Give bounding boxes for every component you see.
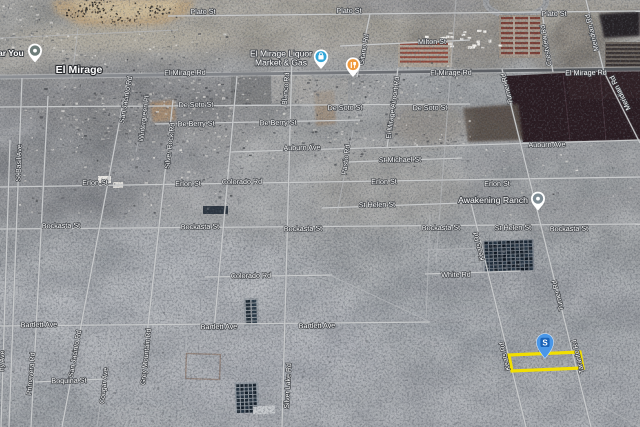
svg-text:De Soto St: De Soto St	[412, 103, 447, 113]
svg-text:Bockasta St: Bockasta St	[181, 222, 220, 232]
svg-text:El Mirage Rd: El Mirage Rd	[164, 68, 206, 78]
svg-text:Auburn Ave: Auburn Ave	[528, 140, 565, 150]
svg-text:Bartlett Ave: Bartlett Ave	[21, 320, 58, 330]
svg-text:St Helen St: St Helen St	[359, 200, 396, 210]
svg-text:Awakening Ranch: Awakening Ranch	[458, 195, 528, 205]
svg-text:Bockasta St: Bockasta St	[422, 223, 461, 233]
svg-text:Erlon St: Erlon St	[371, 177, 397, 186]
svg-text:Bartlett Ave: Bartlett Ave	[299, 321, 336, 331]
svg-text:De Soto St: De Soto St	[178, 100, 213, 110]
svg-text:De Berry St: De Berry St	[259, 118, 296, 128]
svg-text:Colorado Rd: Colorado Rd	[222, 177, 263, 187]
svg-text:El Mirage Rd: El Mirage Rd	[565, 68, 607, 78]
svg-text:St Helen St: St Helen St	[495, 223, 532, 233]
svg-text:St Michael St: St Michael St	[379, 155, 421, 165]
svg-text:Erlon St: Erlon St	[175, 179, 201, 188]
svg-text:Bockasta St: Bockasta St	[550, 224, 589, 234]
svg-text:De Berry St: De Berry St	[177, 119, 214, 129]
svg-text:St Basil Ave: St Basil Ave	[15, 144, 23, 182]
svg-text:Plato St: Plato St	[190, 7, 215, 16]
svg-text:Erlon St: Erlon St	[484, 179, 510, 188]
svg-text:Bockasta St: Bockasta St	[284, 224, 323, 234]
svg-text:Plato St: Plato St	[336, 6, 361, 15]
svg-text:ar You: ar You	[0, 48, 24, 58]
svg-text:S: S	[542, 338, 548, 347]
svg-text:Bockasta St: Bockasta St	[42, 221, 81, 231]
svg-text:El Mirage: El Mirage	[56, 64, 103, 76]
svg-text:ny Ave: ny Ave	[0, 350, 6, 371]
svg-text:Auburn Ave: Auburn Ave	[283, 143, 320, 153]
svg-text:Milton St: Milton St	[418, 37, 446, 46]
svg-text:Bartlett Ave: Bartlett Ave	[201, 322, 238, 332]
svg-text:Market & Gas: Market & Gas	[255, 58, 307, 68]
svg-text:El Mirage Rd: El Mirage Rd	[430, 68, 472, 78]
svg-text:Erlon St: Erlon St	[82, 178, 108, 187]
svg-text:De Soto St: De Soto St	[327, 103, 362, 113]
svg-text:Plato St: Plato St	[541, 9, 566, 18]
svg-text:Colorado Rd: Colorado Rd	[231, 271, 272, 281]
svg-text:White Rd: White Rd	[441, 270, 471, 280]
